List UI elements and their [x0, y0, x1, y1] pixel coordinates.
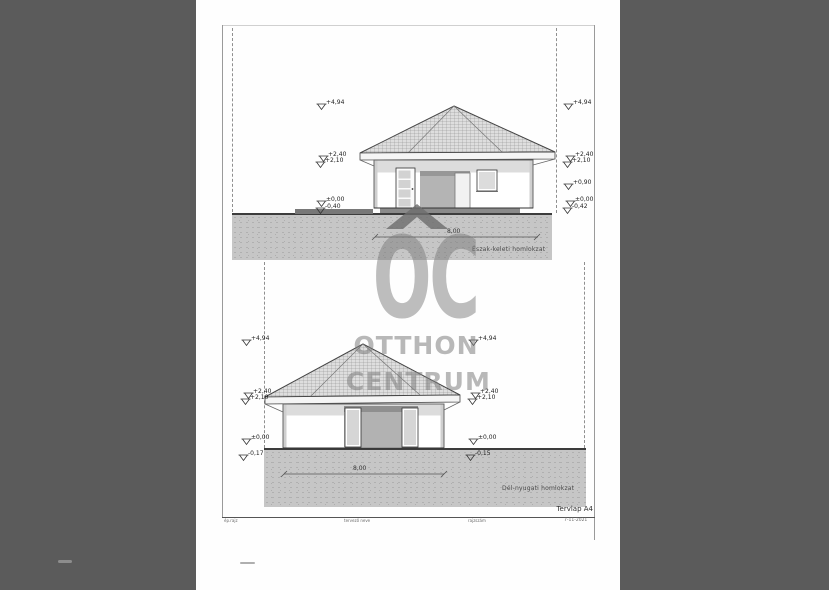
scanned-sheet: +4,94 +2,40 +2,10 ±0,00 -0,40 +4,94 +2,4… — [0, 0, 829, 590]
corner-right — [530, 161, 533, 208]
titleblock-field-2: tervező neve — [344, 519, 370, 523]
dimension-value-top: 8,00 — [447, 229, 460, 235]
titleblock-field-1: ép.rajz — [224, 519, 238, 523]
scan-artifact-mark — [58, 560, 72, 563]
level-marker: +2,10 — [467, 395, 495, 406]
fascia — [265, 395, 460, 404]
level-marker: -0,40 — [315, 204, 341, 215]
elevation-label-bottom: Dél-nyugati homlokzat — [502, 486, 574, 492]
level-marker: +4,94 — [468, 336, 496, 347]
level-marker: -0,17 — [238, 451, 264, 462]
level-marker: +0,90 — [563, 180, 591, 191]
entrance-recess — [420, 176, 455, 208]
dashed-boundary-bottom-right — [584, 262, 585, 448]
level-marker: +2,10 — [315, 158, 343, 169]
frame-top-line — [222, 25, 594, 26]
frame-left-line — [222, 25, 223, 517]
fascia — [360, 152, 555, 160]
sheet-title: Tervlap A4 — [548, 505, 593, 513]
level-marker: -0,15 — [465, 451, 491, 462]
door-handle — [412, 188, 414, 190]
house-elevation-south-west — [255, 335, 470, 455]
plinth — [380, 208, 520, 213]
elevation-label-top: Észak-keleti homlokzat — [472, 247, 545, 253]
entry-door — [455, 173, 470, 208]
level-marker: +4,94 — [241, 336, 269, 347]
level-marker: -0,42 — [562, 204, 588, 215]
corner-left — [375, 161, 378, 208]
dashed-boundary-top-left — [232, 28, 233, 212]
level-marker: +2,10 — [562, 158, 590, 169]
dimension-value-bottom: 8,00 — [353, 466, 366, 472]
corner-right — [441, 405, 444, 448]
level-marker: +2,10 — [240, 395, 268, 406]
house-elevation-north-east — [350, 100, 560, 215]
titleblock-line — [222, 517, 595, 518]
titleblock-date: 7-11-2021 — [564, 519, 587, 524]
roof — [360, 106, 555, 153]
level-marker: ±0,00 — [241, 435, 269, 446]
scan-artifact-dash — [240, 562, 255, 564]
corner-left — [284, 405, 287, 448]
level-marker: +4,94 — [563, 100, 591, 111]
frame-right-line — [594, 25, 595, 540]
titleblock-field-3: rajzszám — [468, 519, 486, 523]
level-marker: ±0,00 — [468, 435, 496, 446]
level-marker: +4,94 — [316, 100, 344, 111]
roof — [265, 344, 460, 397]
